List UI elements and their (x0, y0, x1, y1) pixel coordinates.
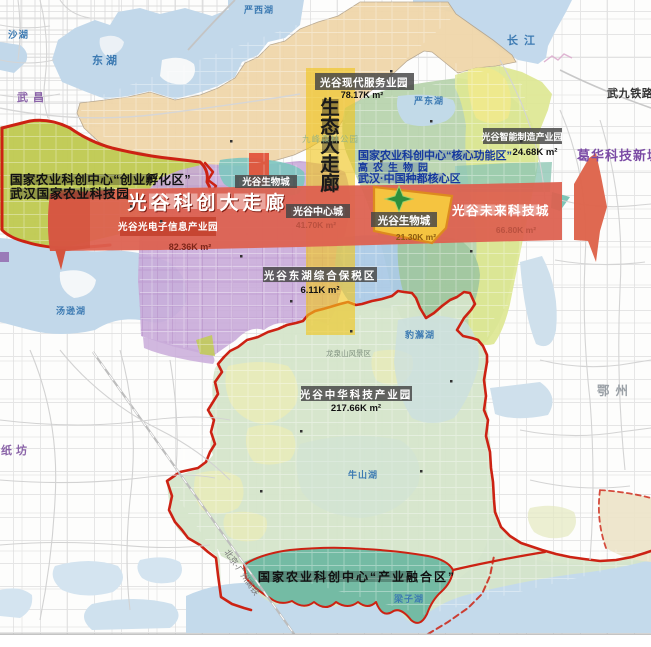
svg-text:汤逊湖: 汤逊湖 (56, 305, 86, 316)
svg-text:光谷东湖综合保税区: 光谷东湖综合保税区 (263, 269, 377, 282)
svg-text:东湖: 东湖 (92, 53, 120, 67)
svg-text:龙泉山风景区: 龙泉山风景区 (326, 348, 371, 358)
svg-text:梁子湖: 梁子湖 (393, 593, 424, 604)
svg-text:78.17K m²: 78.17K m² (341, 90, 384, 100)
svg-text:光谷生物城: 光谷生物城 (377, 214, 431, 227)
svg-text:国家农业科创中心“创业孵化区”: 国家农业科创中心“创业孵化区” (10, 172, 191, 187)
svg-text:廊: 廊 (320, 172, 340, 195)
svg-text:严东湖: 严东湖 (413, 95, 444, 106)
svg-text:国家农业科创中心“产业融合区”: 国家农业科创中心“产业融合区” (258, 569, 456, 584)
svg-text:24.68K m²: 24.68K m² (513, 147, 558, 158)
svg-text:6.11K m²: 6.11K m² (300, 285, 339, 296)
svg-text:光谷科创大走廊: 光谷科创大走廊 (126, 191, 288, 214)
svg-text:豹澥湖: 豹澥湖 (404, 329, 435, 340)
svg-text:217.66K m²: 217.66K m² (331, 403, 381, 414)
svg-text:光谷光电子信息产业园: 光谷光电子信息产业园 (117, 221, 218, 233)
svg-text:武汉国家农业科技园: 武汉国家农业科技园 (10, 186, 130, 201)
svg-text:82.36K m²: 82.36K m² (169, 242, 212, 252)
svg-text:严西湖: 严西湖 (243, 4, 274, 15)
svg-text:光谷中心城: 光谷中心城 (292, 205, 343, 218)
svg-text:41.70K m²: 41.70K m² (296, 220, 336, 230)
svg-text:长江: 长江 (507, 33, 541, 47)
svg-text:光谷中华科技产业园: 光谷中华科技产业园 (299, 388, 413, 401)
svg-text:武汉·中国种都核心区: 武汉·中国种都核心区 (358, 171, 461, 185)
svg-text:牛山湖: 牛山湖 (348, 469, 378, 480)
svg-text:光谷未来科技城: 光谷未来科技城 (451, 203, 550, 218)
svg-text:国家农业科创中心“核心功能区”: 国家农业科创中心“核心功能区” (358, 148, 512, 162)
svg-text:葛华科技新城: 葛华科技新城 (576, 148, 651, 163)
svg-text:鄂州: 鄂州 (597, 384, 634, 398)
svg-text:66.80K m²: 66.80K m² (496, 225, 536, 235)
svg-text:光谷现代服务业园: 光谷现代服务业园 (319, 76, 408, 89)
svg-text:沙湖: 沙湖 (8, 29, 29, 41)
svg-text:纸坊: 纸坊 (1, 443, 31, 457)
svg-text:武九铁路: 武九铁路 (607, 86, 651, 100)
svg-text:武昌: 武昌 (17, 90, 49, 104)
svg-text:光谷生物城: 光谷生物城 (241, 176, 290, 188)
svg-text:九峰森林公园: 九峰森林公园 (302, 134, 359, 144)
svg-text:21.30K m²: 21.30K m² (396, 232, 436, 242)
